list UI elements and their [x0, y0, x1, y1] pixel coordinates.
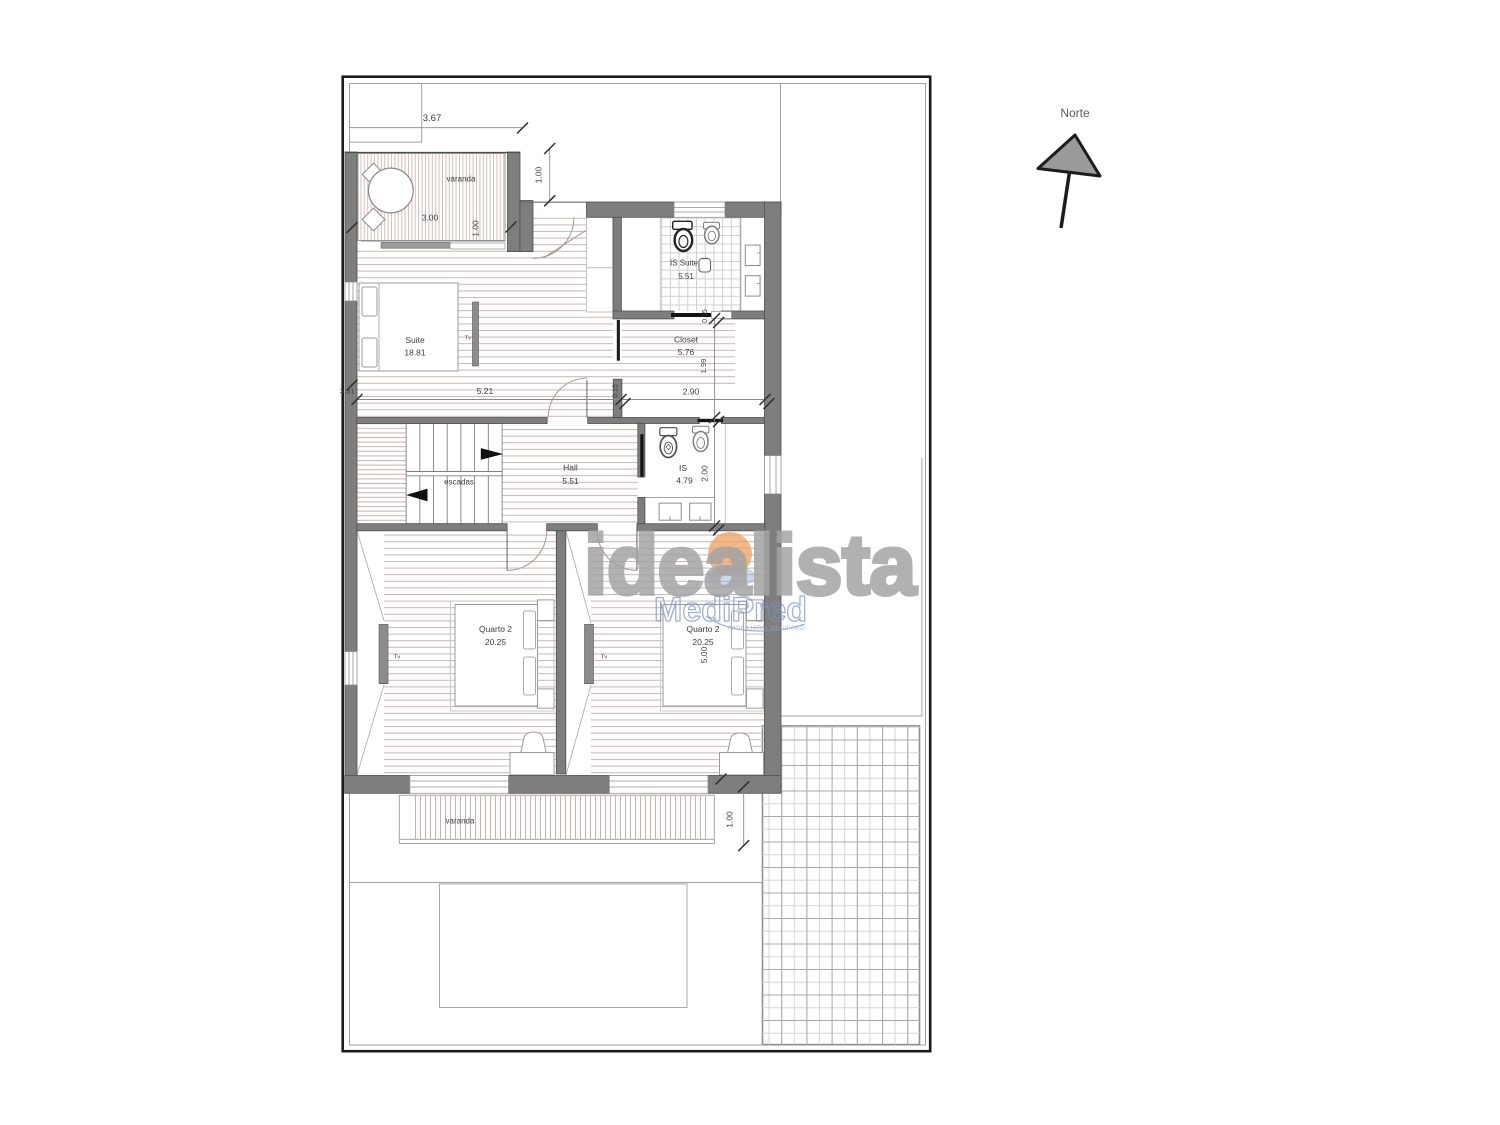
svg-text:5.51: 5.51	[562, 476, 579, 486]
svg-text:0.15: 0.15	[613, 384, 620, 398]
svg-text:4.79: 4.79	[676, 476, 693, 486]
svg-text:3.67: 3.67	[423, 113, 442, 124]
svg-text:Tv: Tv	[394, 655, 400, 661]
svg-text:MediPred: MediPred	[654, 591, 807, 629]
svg-text:varanda: varanda	[447, 175, 476, 184]
svg-text:1.99: 1.99	[699, 359, 708, 374]
svg-text:3.00: 3.00	[422, 213, 439, 223]
svg-text:1.00: 1.00	[534, 166, 544, 183]
svg-text:Quarto 2: Quarto 2	[479, 624, 512, 634]
svg-text:5.76: 5.76	[678, 347, 695, 357]
svg-text:Suite: Suite	[405, 335, 425, 345]
svg-text:Closet: Closet	[674, 335, 699, 345]
svg-text:5.21: 5.21	[477, 386, 494, 396]
svg-text:5.51: 5.51	[678, 272, 694, 281]
svg-text:2.00: 2.00	[700, 465, 710, 482]
svg-text:escadas: escadas	[444, 478, 474, 487]
svg-text:IMOBILIARIA MEDIPRED: IMOBILIARIA MEDIPRED	[728, 626, 805, 632]
svg-text:0.15: 0.15	[702, 309, 709, 323]
svg-text:Hall: Hall	[563, 463, 578, 473]
svg-text:1.00: 1.00	[725, 811, 735, 828]
svg-text:IS: IS	[679, 463, 687, 473]
svg-text:3.31: 3.31	[340, 387, 355, 396]
svg-text:IS Suite: IS Suite	[670, 259, 699, 268]
svg-text:20.25: 20.25	[692, 637, 714, 647]
svg-text:varanda: varanda	[446, 817, 475, 826]
svg-text:Tv: Tv	[601, 655, 607, 661]
svg-text:Tv: Tv	[465, 336, 471, 342]
svg-text:5.00: 5.00	[699, 646, 709, 663]
svg-text:20.25: 20.25	[485, 637, 507, 647]
svg-text:1.00: 1.00	[471, 220, 481, 237]
svg-text:18.81: 18.81	[404, 348, 426, 358]
svg-text:Norte: Norte	[1060, 106, 1090, 120]
svg-text:2.90: 2.90	[683, 387, 700, 397]
